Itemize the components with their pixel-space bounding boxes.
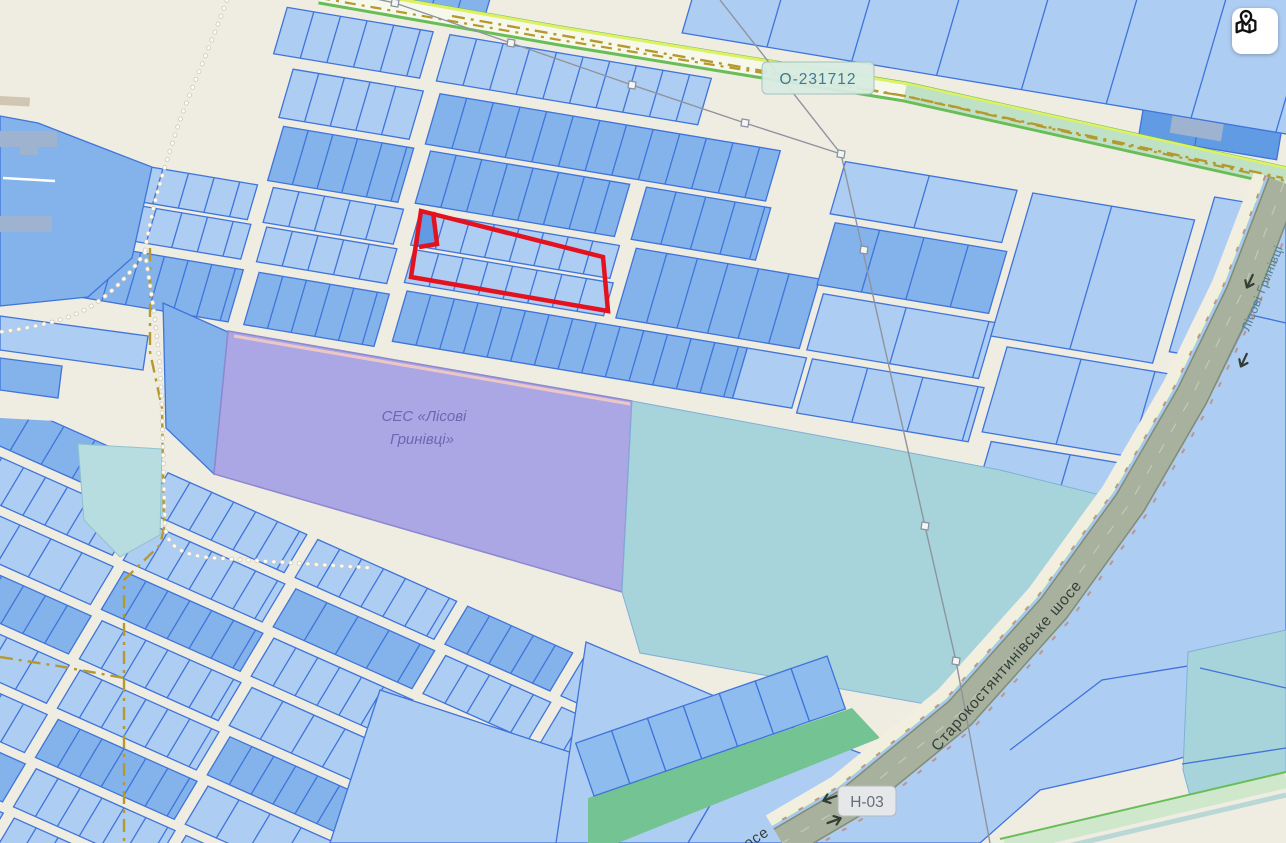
road-shield-o231712-text: О-231712	[780, 71, 857, 88]
power-pylon-node	[952, 657, 960, 665]
building-footprint	[0, 131, 57, 147]
map-layers-button[interactable]	[1232, 8, 1278, 54]
power-pylon-node	[860, 246, 868, 254]
map-canvas[interactable]: СЕС «Лісові Гринівці»	[0, 0, 1286, 843]
power-pylon-node	[837, 150, 845, 158]
building-footprint	[20, 147, 38, 155]
map-viewport[interactable]: СЕС «Лісові Гринівці»	[0, 0, 1286, 843]
building-tan	[0, 96, 30, 107]
solar-station-label: СЕС «Лісові	[382, 408, 467, 425]
power-pylon-node	[921, 522, 929, 530]
road-shield-h03: Н-03	[838, 786, 896, 816]
power-pylon-node	[507, 39, 515, 47]
road-shield-o231712: О-231712	[762, 62, 874, 94]
map-pin-icon	[1232, 8, 1260, 36]
road-shield-h03-text: Н-03	[850, 794, 884, 811]
power-pylon-node	[391, 0, 399, 7]
power-pylon-node	[741, 119, 749, 127]
solar-station-label: Гринівці»	[390, 431, 454, 448]
power-pylon-node	[628, 81, 636, 89]
building-footprint	[0, 216, 52, 232]
